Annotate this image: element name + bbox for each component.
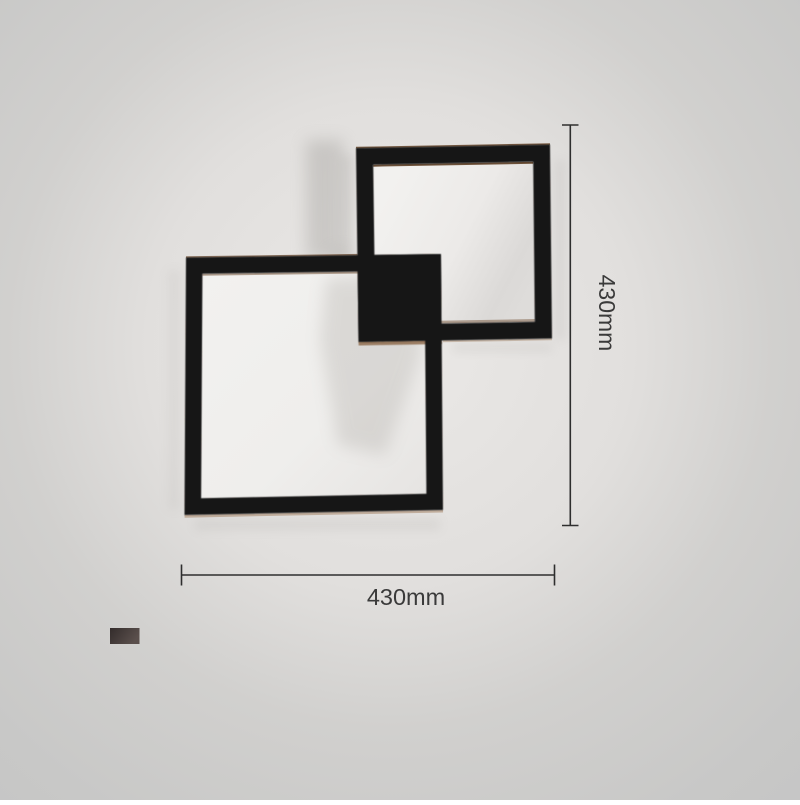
- svg-text:430mm: 430mm: [594, 275, 620, 352]
- svg-text:430mm: 430mm: [367, 584, 445, 610]
